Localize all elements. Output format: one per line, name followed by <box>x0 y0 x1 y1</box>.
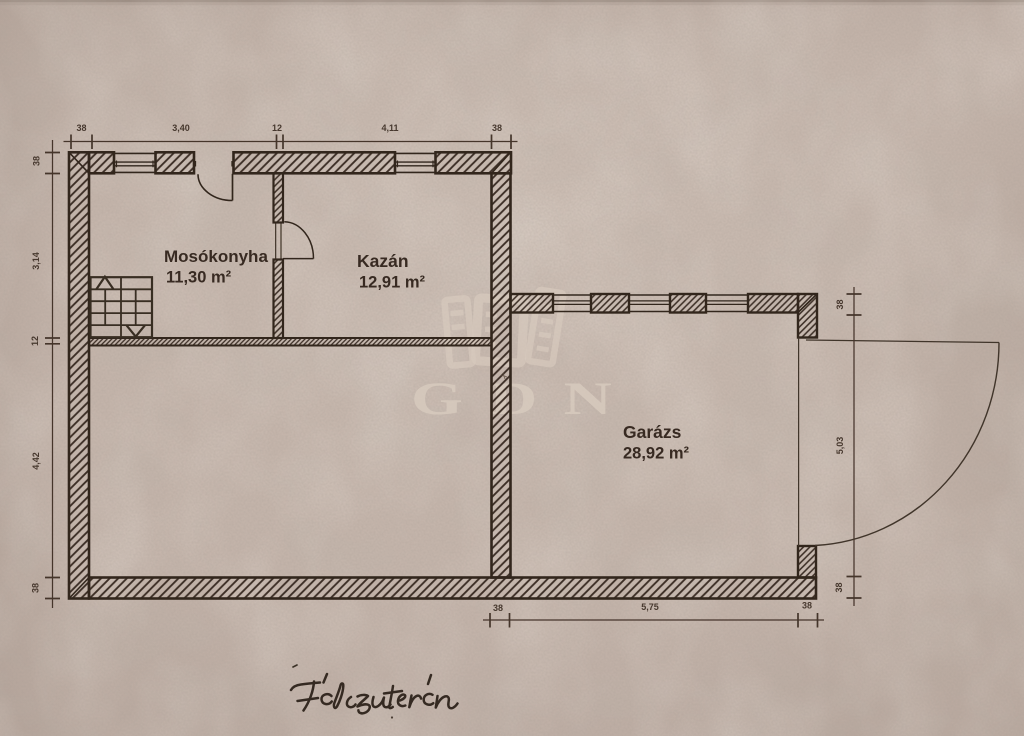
svg-text:11,30 m²: 11,30 m² <box>166 269 232 287</box>
svg-text:Mosókonyha: Mosókonyha <box>164 247 268 266</box>
svg-text:12: 12 <box>272 123 282 133</box>
svg-text:5,75: 5,75 <box>641 602 659 612</box>
svg-text:12,91 m²: 12,91 m² <box>359 274 426 292</box>
svg-text:12: 12 <box>30 336 40 346</box>
svg-text:38: 38 <box>834 582 844 592</box>
svg-text:Kazán: Kazán <box>357 251 409 271</box>
svg-text:4,11: 4,11 <box>381 123 398 133</box>
svg-text:28,92 m²: 28,92 m² <box>623 445 690 463</box>
svg-text:38: 38 <box>802 601 812 611</box>
svg-text:5,03: 5,03 <box>835 437 845 455</box>
svg-text:Garázs: Garázs <box>623 422 682 442</box>
svg-text:38: 38 <box>31 583 41 593</box>
svg-text:3,40: 3,40 <box>172 123 190 133</box>
svg-text:38: 38 <box>835 299 845 309</box>
svg-text:38: 38 <box>493 603 503 613</box>
svg-text:38: 38 <box>76 123 86 133</box>
svg-text:38: 38 <box>32 156 42 166</box>
svg-text:4,42: 4,42 <box>31 452 41 470</box>
svg-text:38: 38 <box>492 123 502 133</box>
svg-text:GDN: GDN <box>411 373 638 424</box>
svg-text:3,14: 3,14 <box>31 252 41 270</box>
